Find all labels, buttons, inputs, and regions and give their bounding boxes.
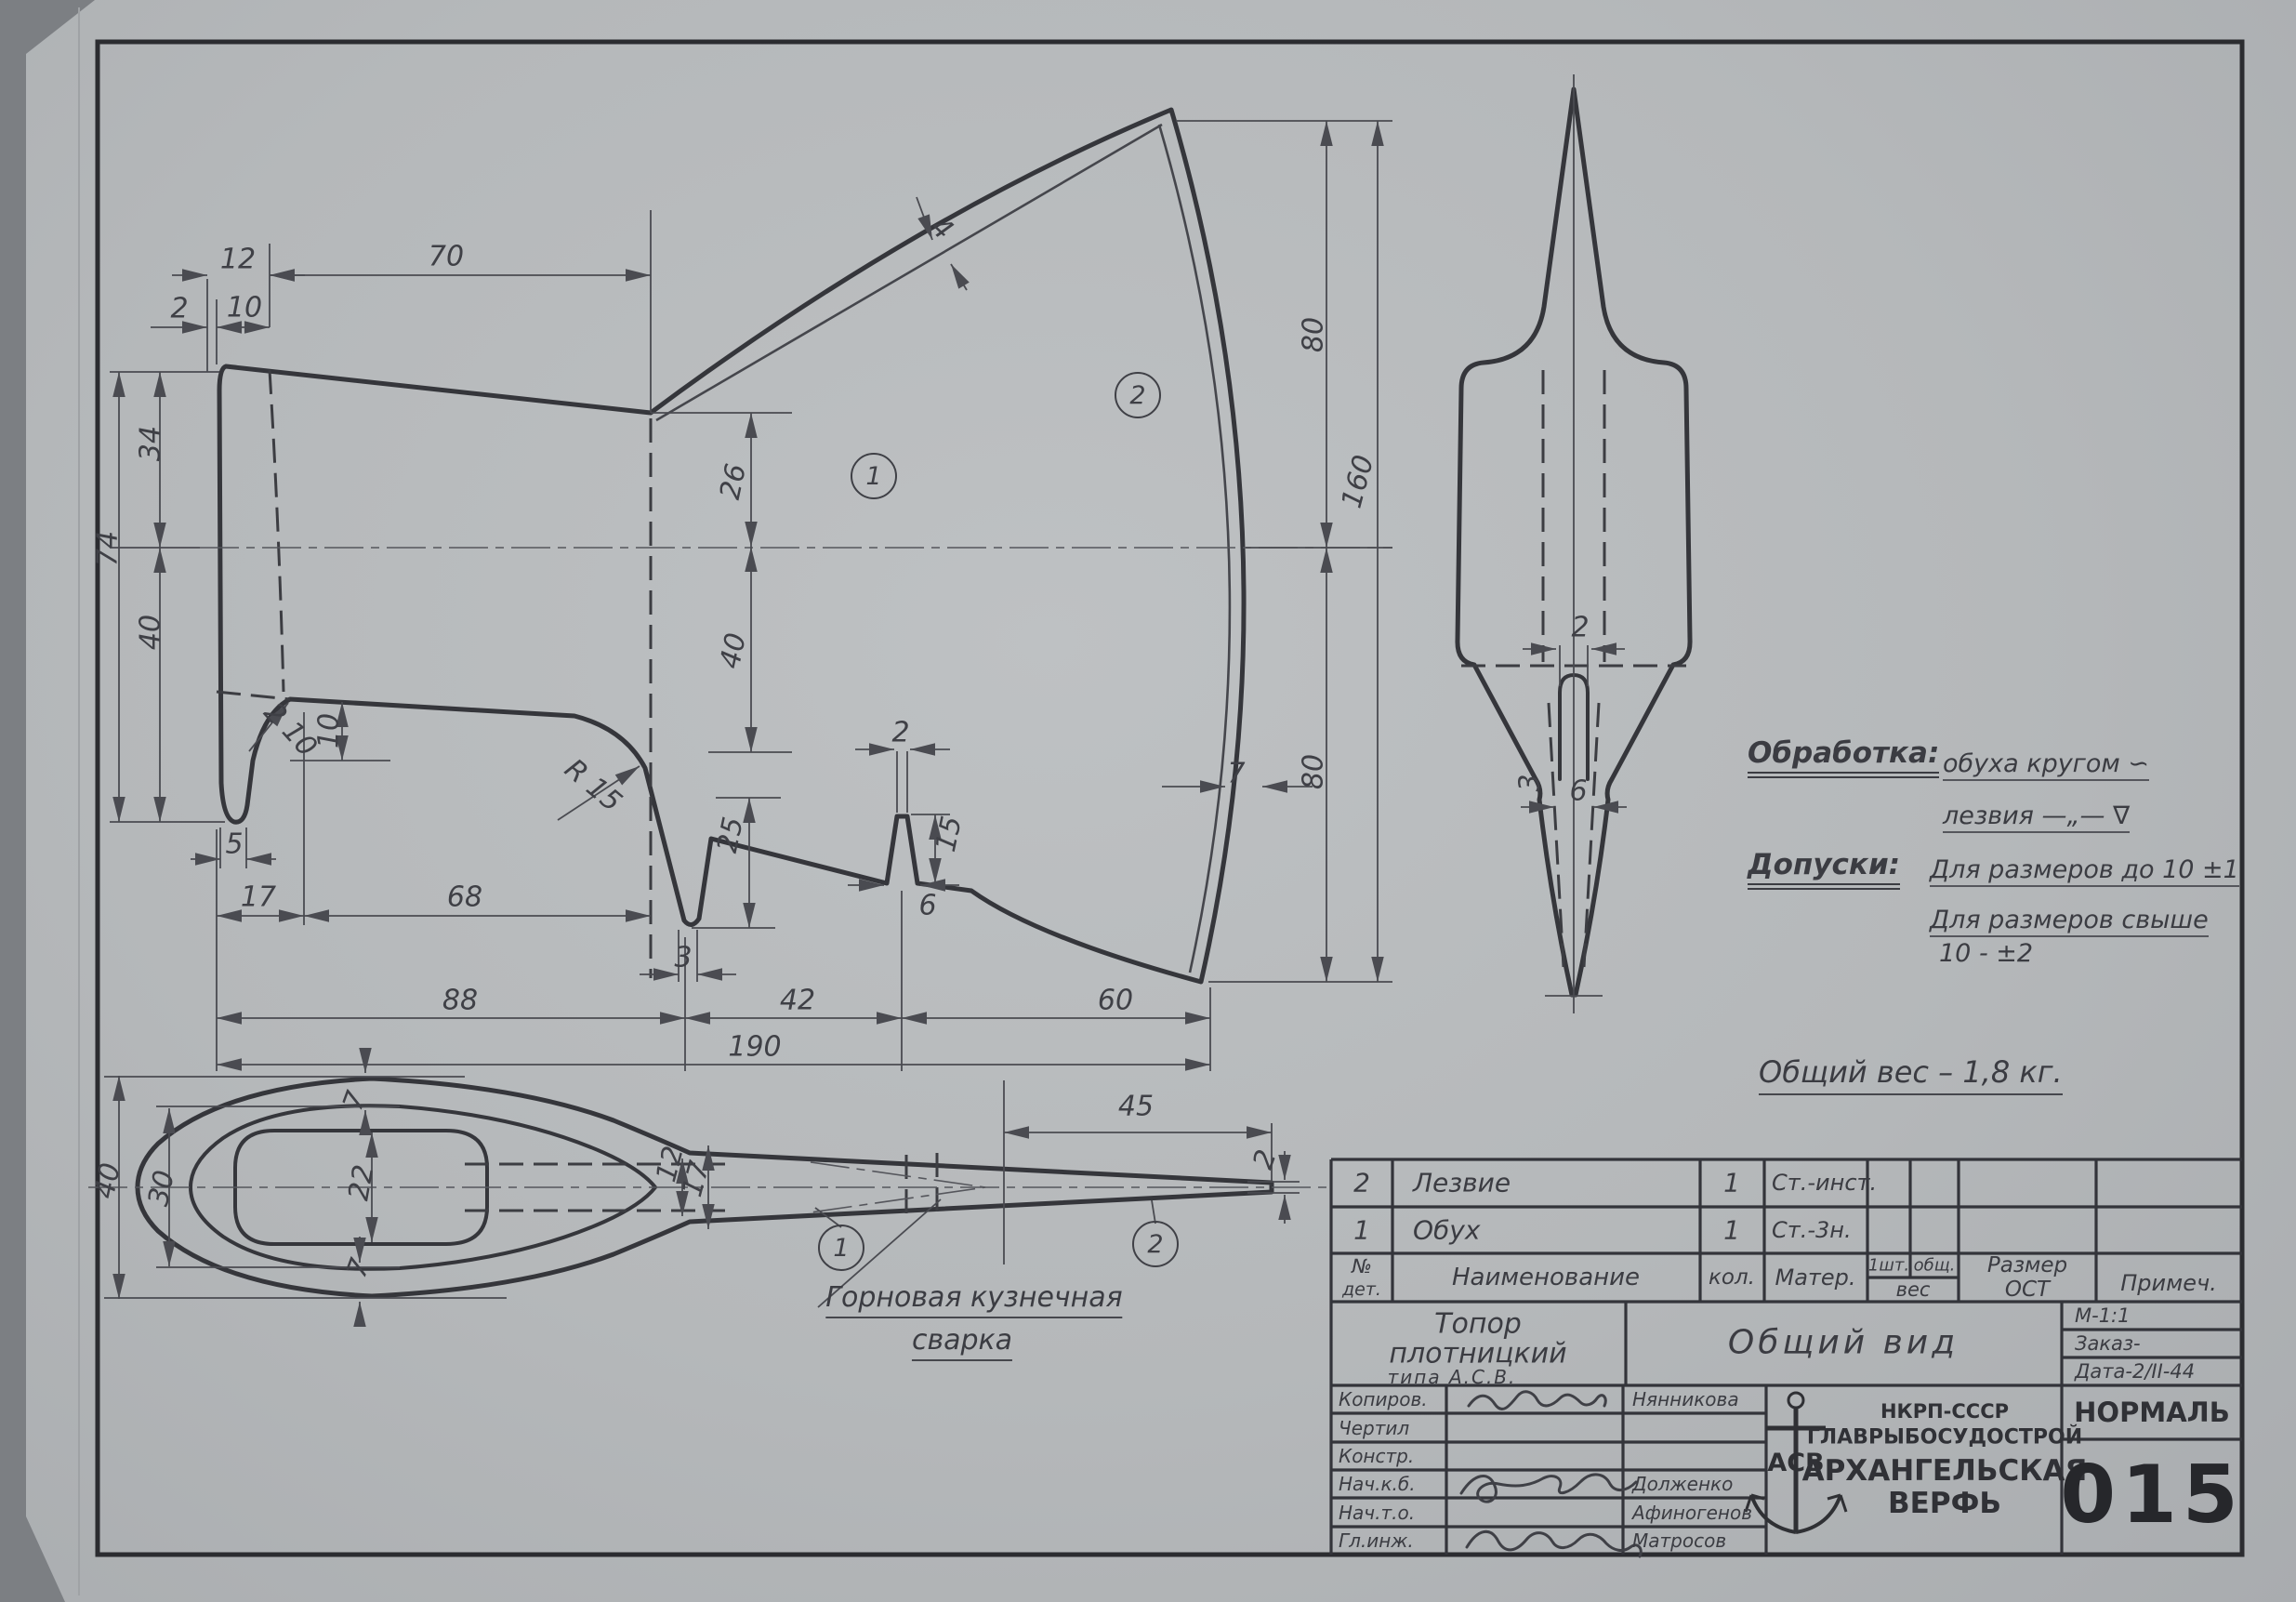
tolerances-note-label: Допуски: (1748, 848, 1900, 890)
sign-row-label: Гл.инж. (1339, 1529, 1414, 1552)
part-callout-balloon: 1 (851, 453, 897, 499)
col-header-size: ОСТ (2005, 1278, 2050, 1302)
dimension-label: 3 (1514, 774, 1547, 791)
dimension-label: 160 (1336, 452, 1381, 511)
dimension-label: 70 (429, 241, 464, 273)
dimension-label: 2 (891, 717, 909, 749)
tolerances-note-value-1: Для размеров до 10 ±1 (1930, 855, 2239, 887)
org-name-line-1: НКРП-СССР (1880, 1400, 2009, 1423)
part-row-qty: 1 (1723, 1168, 1740, 1198)
scale-value: М-1:1 (2075, 1304, 2131, 1327)
dimension-label: 40 (714, 630, 753, 672)
org-name-line-3: АРХАНГЕЛЬСКАЯ (1802, 1454, 2088, 1488)
sign-row-label: Копиров. (1339, 1388, 1428, 1410)
tolerances-note-value-2: Для размеров свыше (1930, 906, 2209, 937)
part-row-material: Ст.-инст. (1772, 1170, 1877, 1196)
col-header-total: общ. (1914, 1256, 1956, 1276)
dimension-label: 74 (92, 531, 125, 566)
part-callout-balloon: 2 (1115, 372, 1161, 418)
sign-row-label: Нач.к.б. (1339, 1473, 1416, 1495)
series-number: 015 (2060, 1449, 2244, 1542)
dimension-label: 26 (714, 461, 753, 503)
part-row-name: Обух (1413, 1215, 1480, 1246)
col-header-size: Размер (1987, 1253, 2067, 1278)
dimension-label: 34 (135, 426, 167, 461)
dimension-label: 17 (241, 881, 276, 914)
dimension-label: 5 (225, 828, 243, 861)
dimension-label: 3 (674, 942, 692, 974)
dimension-label: 60 (1098, 985, 1133, 1017)
dimension-label: 40 (88, 1160, 127, 1202)
dimension-label: 22 (342, 1162, 380, 1203)
dimension-label: 2 (1571, 612, 1589, 644)
dimension-label: 2 (1247, 1145, 1283, 1173)
dimension-label: 80 (1298, 317, 1330, 352)
date-value: Дата-2/II-44 (2075, 1360, 2195, 1383)
sign-row-label: Нач.т.о. (1339, 1502, 1415, 1524)
sign-row-label: Констр. (1339, 1445, 1414, 1467)
dimension-label: 2 (170, 293, 188, 325)
tolerances-note-value-3: 10 - ±2 (1939, 939, 2033, 968)
part-row-no: 2 (1353, 1168, 1370, 1198)
org-name-line-2: ГЛАВРЫБОСУДОСТРОЙ (1807, 1426, 2082, 1450)
sign-row-name: Афиногенов (1632, 1502, 1752, 1524)
weld-note-line-1: Горновая кузнечная (825, 1281, 1122, 1318)
dimension-label: 25 (711, 814, 750, 856)
dimension-label: 88 (442, 985, 478, 1017)
col-header-name: Наименование (1452, 1264, 1640, 1291)
part-row-qty: 1 (1723, 1215, 1740, 1246)
dimension-label: 15 (930, 814, 969, 855)
dimension-label: 10 (227, 292, 262, 324)
processing-note-value-2: лезвия —„— ∇ (1943, 801, 2130, 833)
part-callout-balloon: 2 (1132, 1221, 1179, 1267)
processing-note-label: Обработка: (1748, 736, 1939, 778)
dimension-label: 30 (142, 1168, 181, 1210)
part-callout-balloon: 1 (818, 1225, 864, 1271)
series-label: НОРМАЛЬ (2074, 1397, 2230, 1428)
dimension-label: 7 (1227, 758, 1245, 790)
sign-row-name: Нянникова (1632, 1388, 1739, 1410)
part-row-no: 1 (1353, 1215, 1370, 1246)
dimension-label: 45 (1118, 1091, 1154, 1123)
dimension-label: 42 (780, 985, 815, 1017)
sign-row-name: Матросов (1632, 1529, 1726, 1552)
dimension-label: 12 (220, 244, 256, 276)
part-row-material: Ст.-3н. (1772, 1217, 1852, 1243)
sign-row-name: Долженко (1632, 1473, 1733, 1495)
org-name-line-4: ВЕРФЬ (1888, 1487, 2001, 1520)
dimension-label: 7 (336, 1087, 373, 1115)
order-value: Заказ- (2075, 1332, 2141, 1355)
dimension-label: 6 (1569, 775, 1587, 808)
dimension-label: 40 (135, 615, 167, 650)
dimension-label: 4 (924, 211, 959, 247)
dimension-label: 68 (447, 881, 482, 914)
col-header-per-piece: 1шт. (1868, 1256, 1909, 1276)
dimension-label: 6 (918, 890, 936, 922)
col-header-note: Примеч. (2120, 1270, 2217, 1296)
sign-row-label: Чертил (1339, 1417, 1409, 1439)
total-weight-note: Общий вес – 1,8 кг. (1759, 1054, 2063, 1095)
processing-note-value-1: обуха кругом ∽ (1943, 749, 2149, 781)
dimension-label: 80 (1298, 754, 1330, 789)
col-header-qty: кол. (1709, 1265, 1755, 1290)
dimension-label: 190 (728, 1031, 781, 1064)
drawing-title: Общий вид (1728, 1324, 1959, 1362)
product-name-line-1: Топор (1434, 1308, 1522, 1341)
product-name-line-3: типа А.С.В. (1388, 1366, 1517, 1388)
dimension-label: 7 (340, 1254, 376, 1282)
col-header-material: Матер. (1775, 1264, 1855, 1291)
weld-note-line-2: сварка (912, 1324, 1012, 1361)
part-row-name: Лезвие (1413, 1168, 1511, 1198)
scanned-blueprint-photo: { "colors": { "paper": "#b5b8ba", "backd… (0, 0, 2296, 1602)
col-header-no: № (1352, 1255, 1372, 1278)
dimension-label: 10 (313, 713, 346, 748)
col-header-no: дет. (1342, 1279, 1381, 1300)
dimension-label: R 15 (558, 753, 627, 819)
col-header-weight: вес (1896, 1278, 1931, 1301)
